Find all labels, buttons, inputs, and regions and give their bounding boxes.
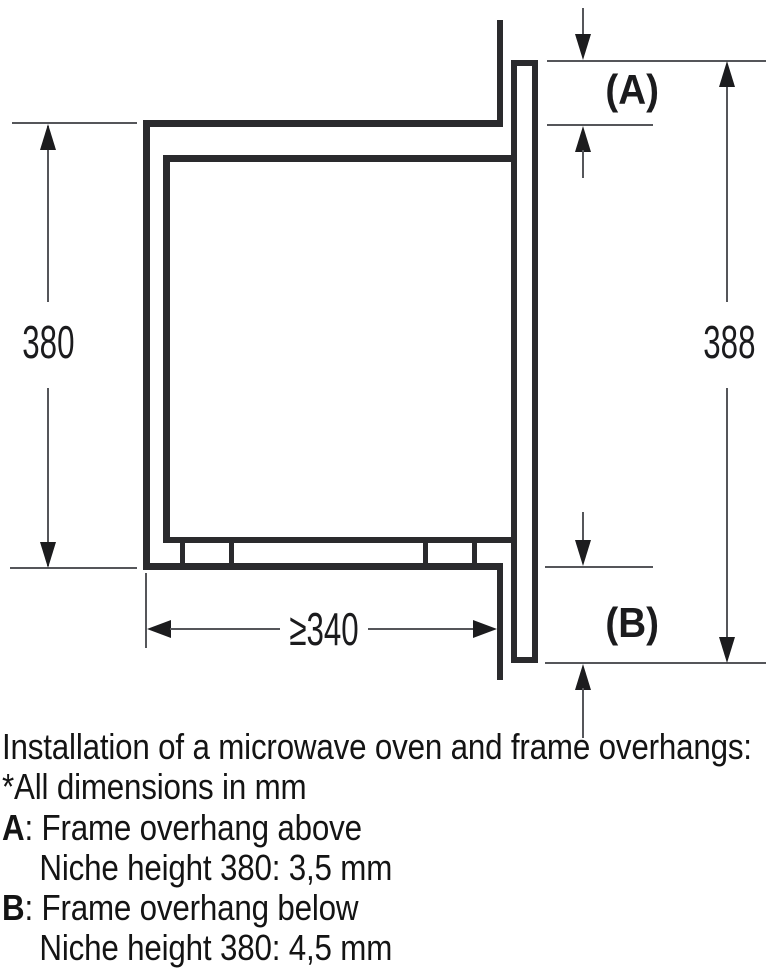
dim-340-arrow-left-icon	[147, 620, 171, 638]
ext-line-niche-bottom-mid	[545, 566, 653, 568]
dim-380-line-upper	[47, 126, 49, 302]
niche-bottom-line	[143, 563, 503, 570]
caption-item-b-detail: Niche height 380: 4,5 mm	[2, 928, 752, 968]
installation-diagram: 380 388 (A) (B) ≥340 Installation of a m…	[0, 0, 766, 970]
dim-a-arrow-up-icon	[575, 126, 591, 152]
caption-item-a-detail: Niche height 380: 3,5 mm	[2, 848, 752, 888]
dim-label-frame-height: 388	[689, 325, 766, 359]
ext-line-niche-top-left	[12, 122, 137, 124]
oven-foot-front-left-line	[423, 540, 428, 567]
caption-item-b-key: B	[2, 887, 24, 928]
niche-height-value: 380	[22, 315, 74, 369]
niche-top-line	[143, 120, 503, 127]
niche-back-wall-line	[143, 120, 150, 570]
dim-b-shaft-top	[582, 512, 584, 542]
overhang-below-value: (B)	[605, 599, 659, 647]
ext-line-niche-bottom-left	[10, 567, 137, 569]
dim-b-arrow-down-icon	[575, 540, 591, 566]
cabinet-wall-above-line	[497, 20, 503, 127]
label-overhang-below: (B)	[582, 599, 682, 647]
oven-top-line	[163, 155, 512, 162]
ext-line-niche-top-mid	[547, 124, 653, 126]
dim-label-niche-depth: ≥340	[264, 612, 384, 646]
oven-foot-rear-right-line	[229, 540, 234, 567]
niche-depth-value: ≥340	[289, 602, 358, 656]
dim-388-line-lower	[726, 388, 728, 638]
caption-item-a-text: : Frame overhang above	[24, 807, 361, 848]
dim-380-arrow-down-icon	[40, 542, 56, 568]
dim-b-arrow-up-icon	[575, 664, 591, 690]
dim-a-shaft-top	[582, 8, 584, 36]
caption-title: Installation of a microwave oven and fra…	[2, 727, 752, 767]
dim-388-arrow-up-icon	[719, 61, 735, 87]
oven-foot-front-right-line	[472, 540, 477, 567]
dim-388-arrow-down-icon	[719, 637, 735, 663]
dim-380-arrow-up-icon	[40, 124, 56, 150]
label-overhang-above: (A)	[582, 66, 682, 114]
oven-front-frame-panel	[511, 60, 538, 663]
cabinet-wall-below-line	[497, 563, 503, 680]
caption-item-b: B: Frame overhang below	[2, 888, 752, 928]
frame-height-value: 388	[703, 315, 755, 369]
dim-label-niche-height: 380	[8, 325, 88, 359]
caption-item-a-key: A	[2, 807, 24, 848]
dim-380-line-lower	[47, 388, 49, 566]
overhang-above-value: (A)	[605, 66, 659, 114]
dim-388-line-upper	[726, 87, 728, 302]
oven-foot-rear-left-line	[180, 540, 185, 567]
dim-a-arrow-down-icon	[575, 34, 591, 60]
caption-item-b-text: : Frame overhang below	[24, 887, 358, 928]
caption-item-a: A: Frame overhang above	[2, 808, 752, 848]
dim-a-shaft-bottom	[582, 150, 584, 178]
oven-back-line	[163, 155, 170, 543]
caption-block: Installation of a microwave oven and fra…	[2, 727, 752, 969]
dim-340-arrow-right-icon	[473, 620, 497, 638]
oven-bottom-line	[163, 537, 512, 543]
caption-note: *All dimensions in mm	[2, 767, 752, 807]
